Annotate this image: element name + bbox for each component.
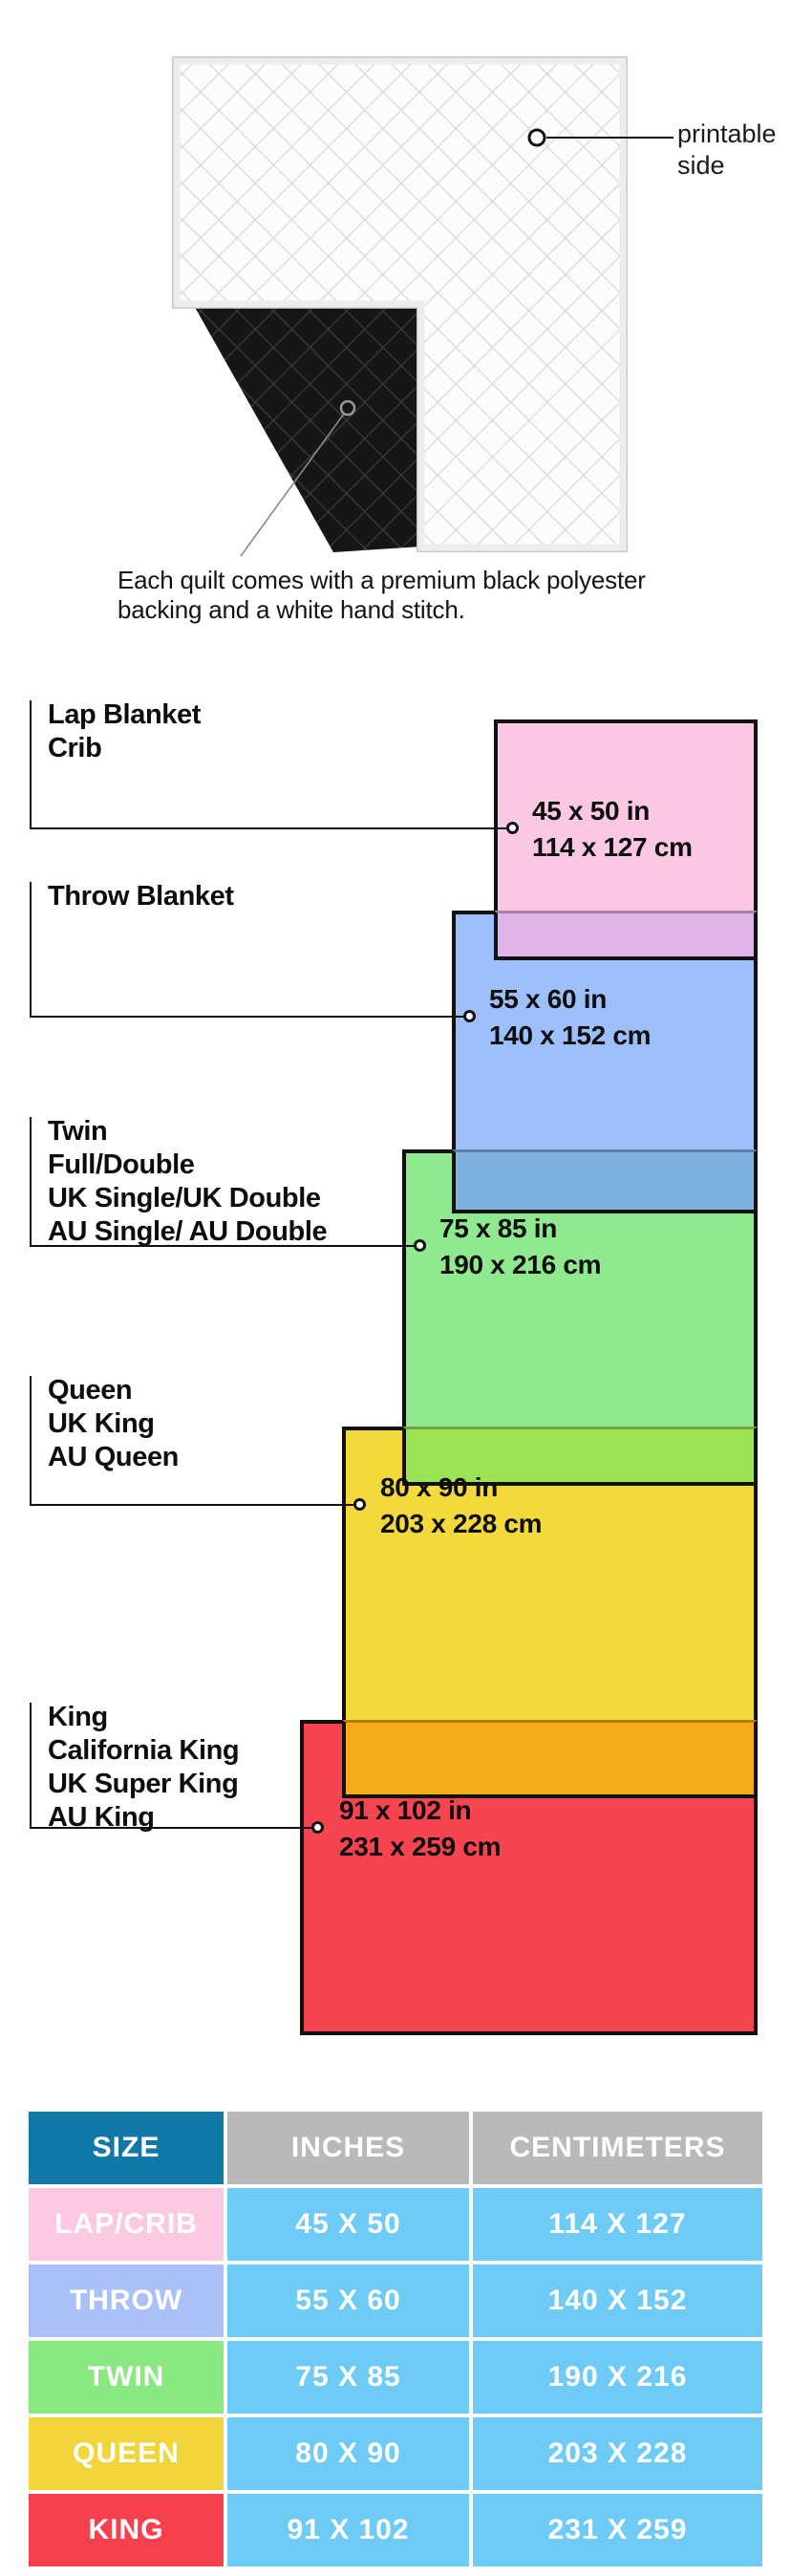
label-group-king: King California King UK Super King AU Ki…: [48, 1701, 239, 1835]
table-row-throw-cm: 140 X 152: [473, 2265, 762, 2337]
table-row-twin-size: TWIN: [29, 2341, 224, 2414]
label-group-queen: Queen UK King AU Queen: [48, 1374, 179, 1474]
size-text-king: 91 x 102 in 231 x 259 cm: [339, 1792, 501, 1865]
printable-side-label: printable side: [677, 118, 791, 182]
table-row-queen-cm: 203 X 228: [473, 2417, 762, 2490]
backing-caption-line1: Each quilt comes with a premium black po…: [118, 566, 646, 595]
table-row-queen-size: QUEEN: [29, 2417, 224, 2490]
label-group-twin: Twin Full/Double UK Single/UK Double AU …: [48, 1115, 327, 1249]
connector-vline-king: [30, 1703, 32, 1829]
table-row-king-cm: 231 X 259: [473, 2494, 762, 2566]
size-text-twin: 75 x 85 in 190 x 216 cm: [439, 1211, 601, 1283]
table-row-lap-cm: 114 X 127: [473, 2188, 762, 2261]
quilt-size-chart-page: printable side Each quilt comes with a p…: [0, 0, 791, 2576]
table-row-lap-size: LAP/CRIB: [29, 2188, 224, 2261]
quilt-photo-illustration: [0, 0, 791, 573]
connector-hline-queen: [30, 1504, 353, 1506]
table-row-king-inches: 91 X 102: [227, 2494, 469, 2566]
overlap-throw-over-twin: [452, 1149, 758, 1213]
connector-dot-twin: [414, 1239, 426, 1252]
table-header-size: SIZE: [29, 2112, 224, 2184]
table-row-throw-size: THROW: [29, 2265, 224, 2337]
connector-dot-throw: [463, 1010, 476, 1022]
connector-vline-lap: [30, 700, 32, 829]
overlap-queen-over-king: [342, 1720, 758, 1798]
backing-caption: Each quilt comes with a premium black po…: [118, 566, 646, 625]
connector-vline-twin: [30, 1117, 32, 1247]
printable-side-callout-circle: [529, 130, 545, 145]
connector-hline-lap: [30, 827, 506, 829]
size-text-throw: 55 x 60 in 140 x 152 cm: [489, 981, 651, 1054]
table-row-king-size: KING: [29, 2494, 224, 2566]
overlap-lap-over-throw: [494, 911, 758, 960]
connector-dot-king: [311, 1821, 324, 1834]
connector-vline-queen: [30, 1376, 32, 1506]
table-row-lap-inches: 45 X 50: [227, 2188, 469, 2261]
table-row-twin-cm: 190 X 216: [473, 2341, 762, 2414]
quilt-black-backing: [193, 304, 421, 552]
backing-caption-line2: backing and a white hand stitch.: [118, 595, 646, 625]
table-row-queen-inches: 80 X 90: [227, 2417, 469, 2490]
connector-dot-lap: [506, 822, 519, 834]
label-group-throw: Throw Blanket: [48, 880, 234, 913]
connector-hline-twin: [30, 1245, 414, 1247]
connector-hline-throw: [30, 1016, 463, 1018]
table-header-inches: INCHES: [227, 2112, 469, 2184]
label-group-lap: Lap Blanket Crib: [48, 698, 201, 765]
table-row-twin-inches: 75 X 85: [227, 2341, 469, 2414]
connector-dot-queen: [353, 1498, 366, 1511]
table-row-throw-inches: 55 X 60: [227, 2265, 469, 2337]
size-table: SIZE INCHES CENTIMETERS LAP/CRIB 45 X 50…: [29, 2112, 762, 2566]
connector-vline-throw: [30, 882, 32, 1018]
size-text-lap: 45 x 50 in 114 x 127 cm: [532, 793, 693, 866]
size-text-queen: 80 x 90 in 203 x 228 cm: [380, 1470, 542, 1542]
table-header-centimeters: CENTIMETERS: [473, 2112, 762, 2184]
connector-hline-king: [30, 1827, 311, 1829]
